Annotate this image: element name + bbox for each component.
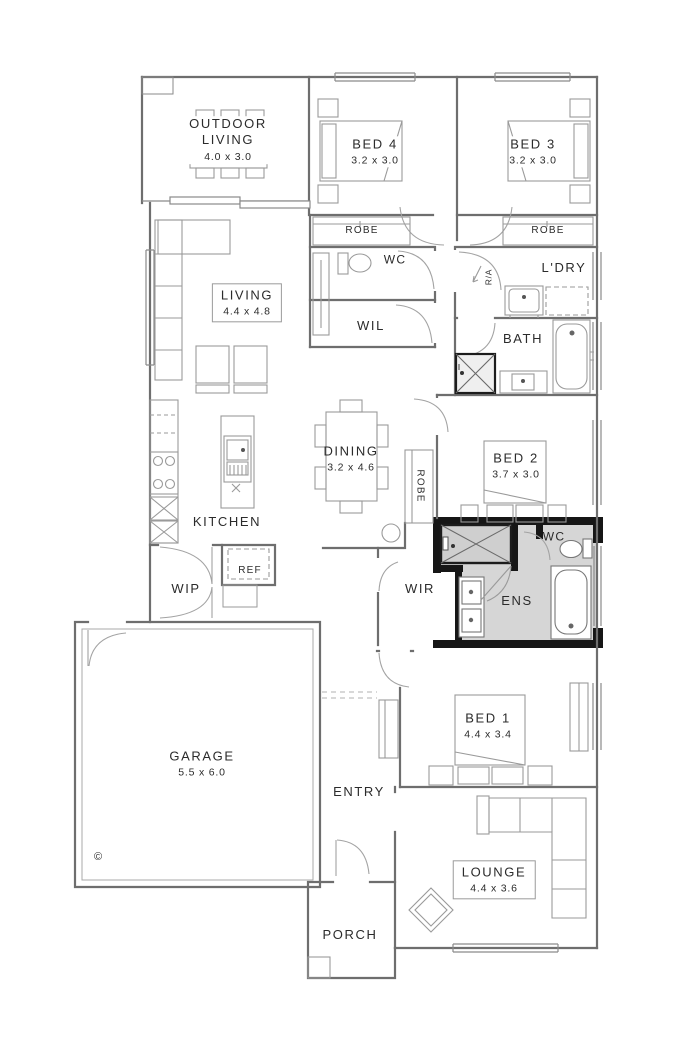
kitchen-bench <box>150 400 178 543</box>
door-laundry <box>459 252 501 290</box>
room-label-robe-bed2: ROBE <box>413 469 426 502</box>
bulkhead-dashed-lines <box>322 692 377 698</box>
lounge-sofa <box>477 796 586 918</box>
room-label-bed4: BED 4 3.2 x 3.0 <box>351 136 398 167</box>
room-label-wil: WIL <box>357 318 385 334</box>
ens-bathtub-icon <box>551 566 591 639</box>
bath-shower-icon <box>456 354 495 393</box>
garage-name: GARAGE <box>169 748 234 764</box>
bed2-dims: 3.7 x 3.0 <box>492 469 539 482</box>
room-label-bed1: BED 1 4.4 x 3.4 <box>464 710 511 741</box>
bath-bathtub-icon <box>553 320 594 393</box>
floor-plan: OUTDOOR LIVING 4.0 x 3.0 BED 4 3.2 x 3.0… <box>0 0 700 1045</box>
ref-name: REF <box>238 565 262 578</box>
room-label-kitchen: KITCHEN <box>193 514 261 530</box>
room-label-ref: REF <box>238 565 262 578</box>
bed2-name: BED 2 <box>492 450 539 466</box>
garage-dims: 5.5 x 6.0 <box>169 767 234 780</box>
room-label-outdoor-living: OUTDOOR LIVING 4.0 x 3.0 <box>178 116 278 164</box>
bed1-name: BED 1 <box>464 710 511 726</box>
bed3-name: BED 3 <box>509 136 556 152</box>
room-label-bath: BATH <box>503 331 543 347</box>
door-entry <box>336 840 369 876</box>
bath-name: BATH <box>503 331 543 347</box>
room-label-garage: GARAGE 5.5 x 6.0 <box>169 748 234 779</box>
room-label-laundry: L'DRY <box>542 260 587 276</box>
room-label-dining: DINING 3.2 x 4.6 <box>323 443 378 474</box>
outdoor-living-dims: 4.0 x 3.0 <box>178 151 278 164</box>
lounge-name: LOUNGE <box>462 864 527 880</box>
outdoor-living-name: OUTDOOR LIVING <box>178 116 278 149</box>
room-label-bed2: BED 2 3.7 x 3.0 <box>492 450 539 481</box>
dining-dims: 3.2 x 4.6 <box>323 462 378 475</box>
robe-bed3-name: ROBE <box>531 225 564 238</box>
bed4-name: BED 4 <box>351 136 398 152</box>
lounge-dims: 4.4 x 3.6 <box>462 883 527 896</box>
robe-bed4-name: ROBE <box>345 225 378 238</box>
wc-upper-name: WC <box>384 253 406 268</box>
robe-bed2-name: ROBE <box>413 469 426 502</box>
room-label-wc-ens: WC <box>543 530 565 545</box>
bath-vanity <box>500 371 547 393</box>
bed1-dims: 4.4 x 3.4 <box>464 729 511 742</box>
floorplan-drawing <box>0 0 700 1045</box>
room-label-wir: WIR <box>405 581 435 597</box>
door-wil <box>396 305 432 343</box>
windows <box>142 73 601 952</box>
door-hall-left <box>400 207 444 245</box>
door-garage-wip <box>88 630 126 666</box>
lounge-rug <box>409 888 453 932</box>
kitchen-name: KITCHEN <box>193 514 261 530</box>
return-air-label: R/A <box>484 269 495 286</box>
ens-shower-icon <box>441 525 511 563</box>
door-bed1 <box>379 653 409 687</box>
room-label-porch: PORCH <box>323 927 378 943</box>
ens-vanity <box>459 577 484 637</box>
door-hall-right <box>470 207 512 245</box>
toilet-upper-icon <box>338 253 371 274</box>
door-bath <box>459 323 495 357</box>
corner-post <box>142 77 173 94</box>
laundry-tub <box>505 286 588 318</box>
entry-name: ENTRY <box>333 784 385 800</box>
copyright-mark: © <box>94 851 102 865</box>
wir-name: WIR <box>405 581 435 597</box>
room-label-wip: WIP <box>171 581 200 597</box>
bed3-dims: 3.2 x 3.0 <box>509 155 556 168</box>
room-label-lounge: LOUNGE 4.4 x 3.6 <box>453 860 536 899</box>
sliding-door <box>142 197 310 208</box>
wc-ens-name: WC <box>543 530 565 545</box>
room-label-robe-bed4: ROBE <box>345 225 378 238</box>
room-label-living: LIVING 4.4 x 4.8 <box>212 283 282 322</box>
fridge-space <box>223 549 269 607</box>
wip-name: WIP <box>171 581 200 597</box>
room-label-ens: ENS <box>501 593 533 609</box>
living-dims: 4.4 x 4.8 <box>221 306 273 319</box>
living-name: LIVING <box>221 287 273 303</box>
room-label-robe-bed3: ROBE <box>531 225 564 238</box>
kitchen-island <box>221 416 254 508</box>
door-wir <box>379 562 398 591</box>
porch-name: PORCH <box>323 927 378 943</box>
room-label-bed3: BED 3 3.2 x 3.0 <box>509 136 556 167</box>
room-label-wc-upper: WC <box>384 253 406 268</box>
ens-suite <box>433 517 603 648</box>
return-air-arrow <box>473 266 481 282</box>
tv-unit <box>313 253 329 335</box>
dining-name: DINING <box>323 443 378 459</box>
bed4-dims: 3.2 x 3.0 <box>351 155 398 168</box>
room-label-entry: ENTRY <box>333 784 385 800</box>
laundry-name: L'DRY <box>542 260 587 276</box>
porch-pier <box>308 957 330 978</box>
column <box>382 524 400 542</box>
copyright-glyph: © <box>94 851 102 865</box>
annotation-return-air: R/A <box>484 269 495 286</box>
wil-name: WIL <box>357 318 385 334</box>
door-bed2 <box>414 399 448 432</box>
ens-name: ENS <box>501 593 533 609</box>
